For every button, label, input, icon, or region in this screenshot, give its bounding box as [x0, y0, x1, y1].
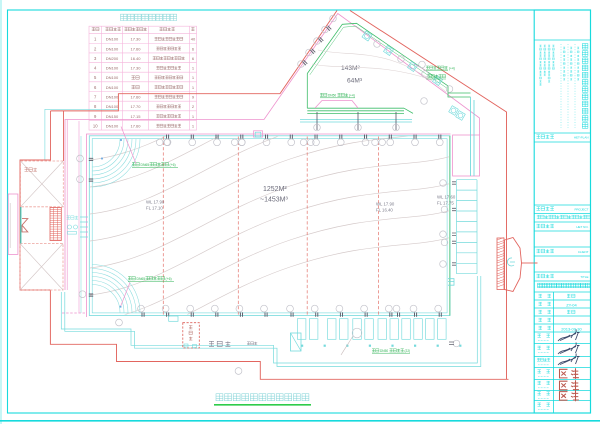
svg-text:2013-09-30: 2013-09-30 [561, 326, 582, 331]
svg-text:10: 10 [93, 123, 98, 128]
svg-text:16.40: 16.40 [130, 56, 141, 61]
svg-text:DN100: DN100 [106, 95, 119, 100]
svg-text:(+6): (+6) [166, 277, 172, 281]
svg-text:HET-PLAN: HET-PLAN [574, 135, 589, 139]
svg-text:(+6): (+6) [170, 163, 176, 167]
svg-text:WL 17.90: WL 17.90 [146, 200, 165, 205]
svg-text:ZY-04: ZY-04 [566, 302, 577, 307]
svg-text:(+4): (+4) [349, 94, 355, 98]
svg-text:(+4): (+4) [449, 66, 455, 70]
svg-text:DN50: DN50 [380, 349, 388, 353]
svg-text:17.30: 17.30 [130, 37, 141, 42]
svg-text:DN65: DN65 [137, 277, 146, 281]
svg-text:DN100: DN100 [106, 123, 119, 128]
svg-text:DN100: DN100 [106, 46, 119, 51]
svg-text:WL 17.90: WL 17.90 [376, 202, 395, 207]
svg-text:DN200: DN200 [106, 56, 119, 61]
svg-text:~1453M³: ~1453M³ [260, 197, 288, 204]
svg-text:17.60: 17.60 [130, 46, 141, 51]
svg-text:17.30: 17.30 [130, 66, 141, 71]
svg-text:DN50: DN50 [328, 94, 336, 98]
svg-text:1252M²: 1252M² [263, 186, 287, 193]
svg-text:DN100: DN100 [106, 37, 119, 42]
svg-text:WL 17.60: WL 17.60 [437, 195, 456, 200]
svg-text:PROJECT: PROJECT [574, 207, 588, 211]
svg-text:HET NO.: HET NO. [576, 225, 588, 229]
svg-text:143M²: 143M² [341, 65, 360, 72]
svg-text:FL 17.10: FL 17.10 [146, 206, 163, 211]
svg-text:FL 17.75: FL 17.75 [437, 201, 454, 206]
svg-text:17.70: 17.70 [130, 104, 141, 109]
svg-text:40: 40 [191, 37, 196, 42]
svg-text:17.60: 17.60 [130, 123, 141, 128]
svg-text:DN100: DN100 [106, 85, 119, 90]
svg-text:64M³: 64M³ [347, 78, 363, 85]
svg-text:DN100: DN100 [106, 104, 119, 109]
svg-text:CLIENT: CLIENT [578, 250, 589, 254]
svg-text:TITLE: TITLE [580, 275, 588, 279]
svg-text:(22): (22) [405, 349, 411, 353]
svg-text:DN150: DN150 [106, 114, 119, 119]
svg-text:17.15: 17.15 [130, 114, 141, 119]
svg-text:DN100: DN100 [106, 66, 119, 71]
svg-text:DN100: DN100 [106, 75, 119, 80]
svg-text:17.60: 17.60 [130, 95, 141, 100]
svg-text:FL 16.40: FL 16.40 [376, 208, 393, 213]
svg-text:DN65: DN65 [141, 163, 150, 167]
